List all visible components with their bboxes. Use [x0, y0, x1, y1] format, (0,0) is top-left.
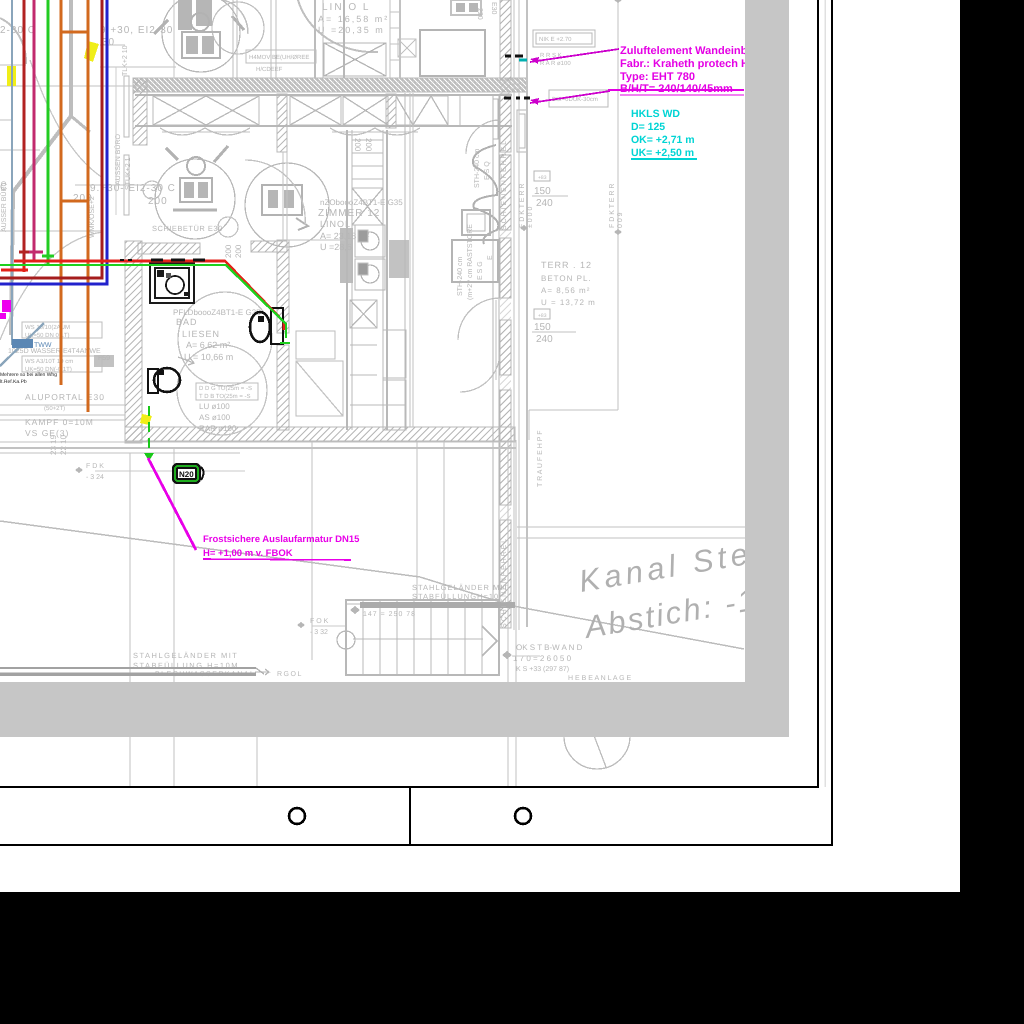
svg-text:147 = 250 78: 147 = 250 78 — [363, 611, 416, 618]
svg-text:NIK E +2.70: NIK E +2.70 — [539, 36, 572, 43]
svg-text:F D K: F D K — [86, 463, 104, 470]
svg-text:LIESEN: LIESEN — [182, 329, 220, 339]
svg-text:H/CDEEF: H/CDEEF — [256, 66, 283, 73]
svg-text:- 3 24: - 3 24 — [86, 474, 104, 481]
svg-text:240: 240 — [536, 198, 553, 209]
svg-text:S C H I E N E N F E H R E L: S C H I E N E N F E H R E L — [501, 539, 508, 628]
svg-text:TWW: TWW — [34, 342, 52, 349]
svg-text:± 0 0 0: ± 0 0 0 — [527, 207, 534, 228]
svg-text:240: 240 — [536, 334, 553, 345]
svg-text:LIN O L: LIN O L — [322, 2, 370, 13]
svg-text:+83: +83 — [538, 313, 547, 319]
svg-text:K S +33 (297 87): K S +33 (297 87) — [516, 665, 569, 673]
svg-text:TERR . 12: TERR . 12 — [541, 260, 592, 270]
svg-text:lt.Ref.Ka.Pb: lt.Ref.Ka.Pb — [0, 379, 27, 385]
svg-text:Frostsichere Auslaufarmatur: Frostsichere Auslaufarmatur DN15 — [203, 534, 360, 545]
svg-text:H= +1,00 m v. FBOK: H= +1,00 m v. FBOK — [203, 548, 293, 559]
svg-text:Type: EHT 780: Type: EHT 780 — [620, 71, 695, 83]
svg-text:STH-240 cm: STH-240 cm — [474, 149, 481, 188]
svg-text:E S G: E S G — [477, 261, 484, 280]
svg-text:STAHLGELÄNDER MIT: STAHLGELÄNDER MIT — [412, 583, 509, 592]
svg-text:0 0 9: 0 0 9 — [617, 212, 624, 228]
svg-text:WS 10/10(2AUM: WS 10/10(2AUM — [25, 324, 70, 331]
svg-text:- 3 32: - 3 32 — [310, 629, 328, 636]
svg-text:2-30 C: 2-30 C — [0, 25, 36, 36]
svg-text:200: 200 — [224, 244, 233, 258]
svg-text:BETON PL.: BETON PL. — [541, 274, 592, 283]
svg-text:U =20,35 m: U =20,35 m — [318, 25, 385, 35]
svg-text:(50+2T): (50+2T) — [44, 405, 65, 412]
svg-text:BAD: BAD — [176, 317, 198, 327]
svg-text:22 10: 22 10 — [59, 434, 68, 455]
svg-text:+83: +83 — [538, 175, 547, 181]
svg-text:HKLS WD: HKLS WD — [631, 108, 680, 120]
svg-text:UK= +2,50 m: UK= +2,50 m — [631, 147, 694, 159]
svg-text:AUSSER BÜRO: AUSSER BÜRO — [0, 180, 8, 232]
svg-text:23 19: 23 19 — [49, 434, 58, 455]
svg-text:H E B E A N L A G E: H E B E A N L A G E — [568, 675, 631, 682]
svg-text:A= 6,62 m²: A= 6,62 m² — [186, 340, 230, 350]
svg-text:T D B TO(25m = -S: T D B TO(25m = -S — [199, 393, 251, 400]
svg-text:PFLDboooZ4BT1-E G35: PFLDboooZ4BT1-E G35 — [173, 308, 261, 317]
svg-text:A= 16,58 m²: A= 16,58 m² — [318, 14, 389, 24]
svg-text:ZIMMER 12: ZIMMER 12 — [318, 208, 380, 219]
svg-text:D= 125: D= 125 — [631, 121, 665, 133]
svg-text:OK= +2,71 m: OK= +2,71 m — [631, 134, 695, 146]
svg-text:STAHLGELÄNDER MIT: STAHLGELÄNDER MIT — [133, 651, 238, 660]
svg-text:AUSSEN BÜRO: AUSSEN BÜRO — [114, 133, 122, 185]
svg-text:Fabr.: Kraheth protech HYG: Fabr.: Kraheth protech HYG — [620, 58, 765, 70]
svg-text:E S Q: E S Q — [484, 161, 491, 180]
svg-text:E30: E30 — [490, 2, 497, 15]
svg-text:U = 10,66 m: U = 10,66 m — [184, 352, 233, 362]
svg-text:H4MOV BE(UH/ØREE: H4MOV BE(UH/ØREE — [249, 54, 309, 61]
svg-text:S C H I E N E N F E H R E L: S C H I E N E N F E H R E L — [501, 141, 508, 230]
svg-text:KAMPF 0=10M: KAMPF 0=10M — [25, 417, 94, 427]
svg-text:U = 13,72 m: U = 13,72 m — [541, 298, 596, 307]
svg-text:9.+30, EI2-30: 9.+30, EI2-30 — [100, 25, 173, 36]
svg-text:AS ø100: AS ø100 — [199, 413, 231, 422]
svg-text:SCHIEBETÜR E30: SCHIEBETÜR E30 — [152, 224, 223, 233]
svg-text:ALUPORTAL E30: ALUPORTAL E30 — [25, 392, 105, 402]
svg-text:WS A3/10T 19 cm: WS A3/10T 19 cm — [25, 358, 73, 365]
svg-text:200: 200 — [234, 244, 243, 258]
svg-text:N20: N20 — [179, 470, 194, 479]
svg-text:F D K T E R R: F D K T E R R — [519, 184, 526, 228]
svg-text:LU ø100: LU ø100 — [199, 402, 230, 411]
svg-text:30: 30 — [102, 37, 115, 48]
svg-text:220: 220 — [476, 8, 483, 20]
svg-text:F D K T E R R: F D K T E R R — [609, 184, 616, 228]
svg-text:A= 8,56 m²: A= 8,56 m² — [541, 286, 590, 295]
svg-text:STH-240 cm: STH-240 cm — [457, 257, 464, 296]
svg-text:R A R ø100: R A R ø100 — [540, 60, 571, 67]
svg-text:TLK+2 10: TLK+2 10 — [122, 45, 129, 76]
svg-text:RGOL: RGOL — [277, 671, 303, 678]
svg-text:(m+2? cm RASTSTORE: (m+2? cm RASTSTORE — [466, 224, 474, 300]
svg-text:F O K: F O K — [310, 618, 329, 625]
svg-text:OK S T B-W A N D: OK S T B-W A N D — [516, 643, 583, 652]
svg-text:Mehrere so bei allen Whg: Mehrere so bei allen Whg — [0, 372, 57, 378]
svg-text:200: 200 — [148, 196, 168, 207]
svg-text:T R A U F E H P F: T R A U F E H P F — [537, 430, 544, 487]
svg-text:D D G TO(25m = -S: D D G TO(25m = -S — [199, 385, 252, 392]
svg-text:RAR ø100: RAR ø100 — [199, 424, 237, 433]
svg-text:STABFÜLLUNGH=10: STABFÜLLUNGH=10 — [412, 592, 499, 601]
